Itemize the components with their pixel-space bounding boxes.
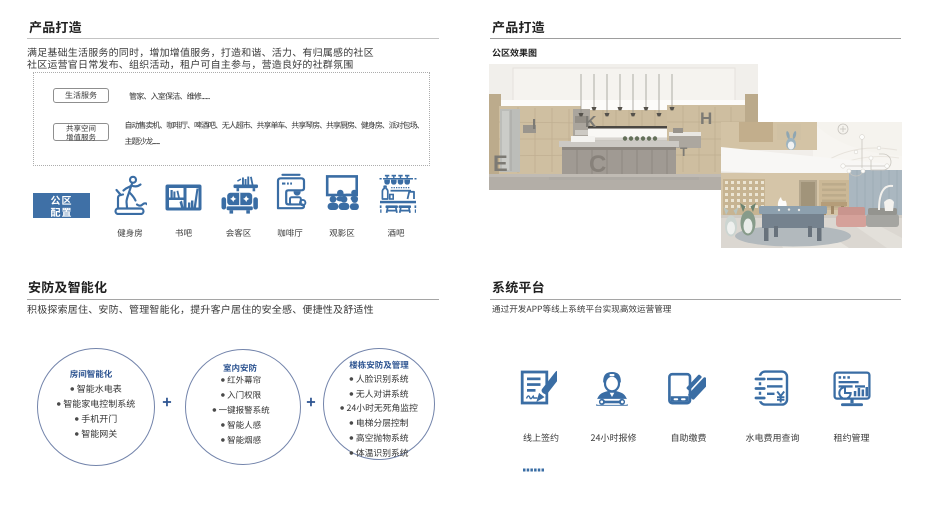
svg-text:E: E bbox=[493, 151, 508, 176]
svg-text:T: T bbox=[680, 145, 688, 159]
svg-text:C: C bbox=[589, 151, 606, 178]
svg-text:K: K bbox=[585, 114, 597, 131]
svg-text:H: H bbox=[700, 109, 712, 128]
svg-text:I: I bbox=[532, 116, 536, 133]
